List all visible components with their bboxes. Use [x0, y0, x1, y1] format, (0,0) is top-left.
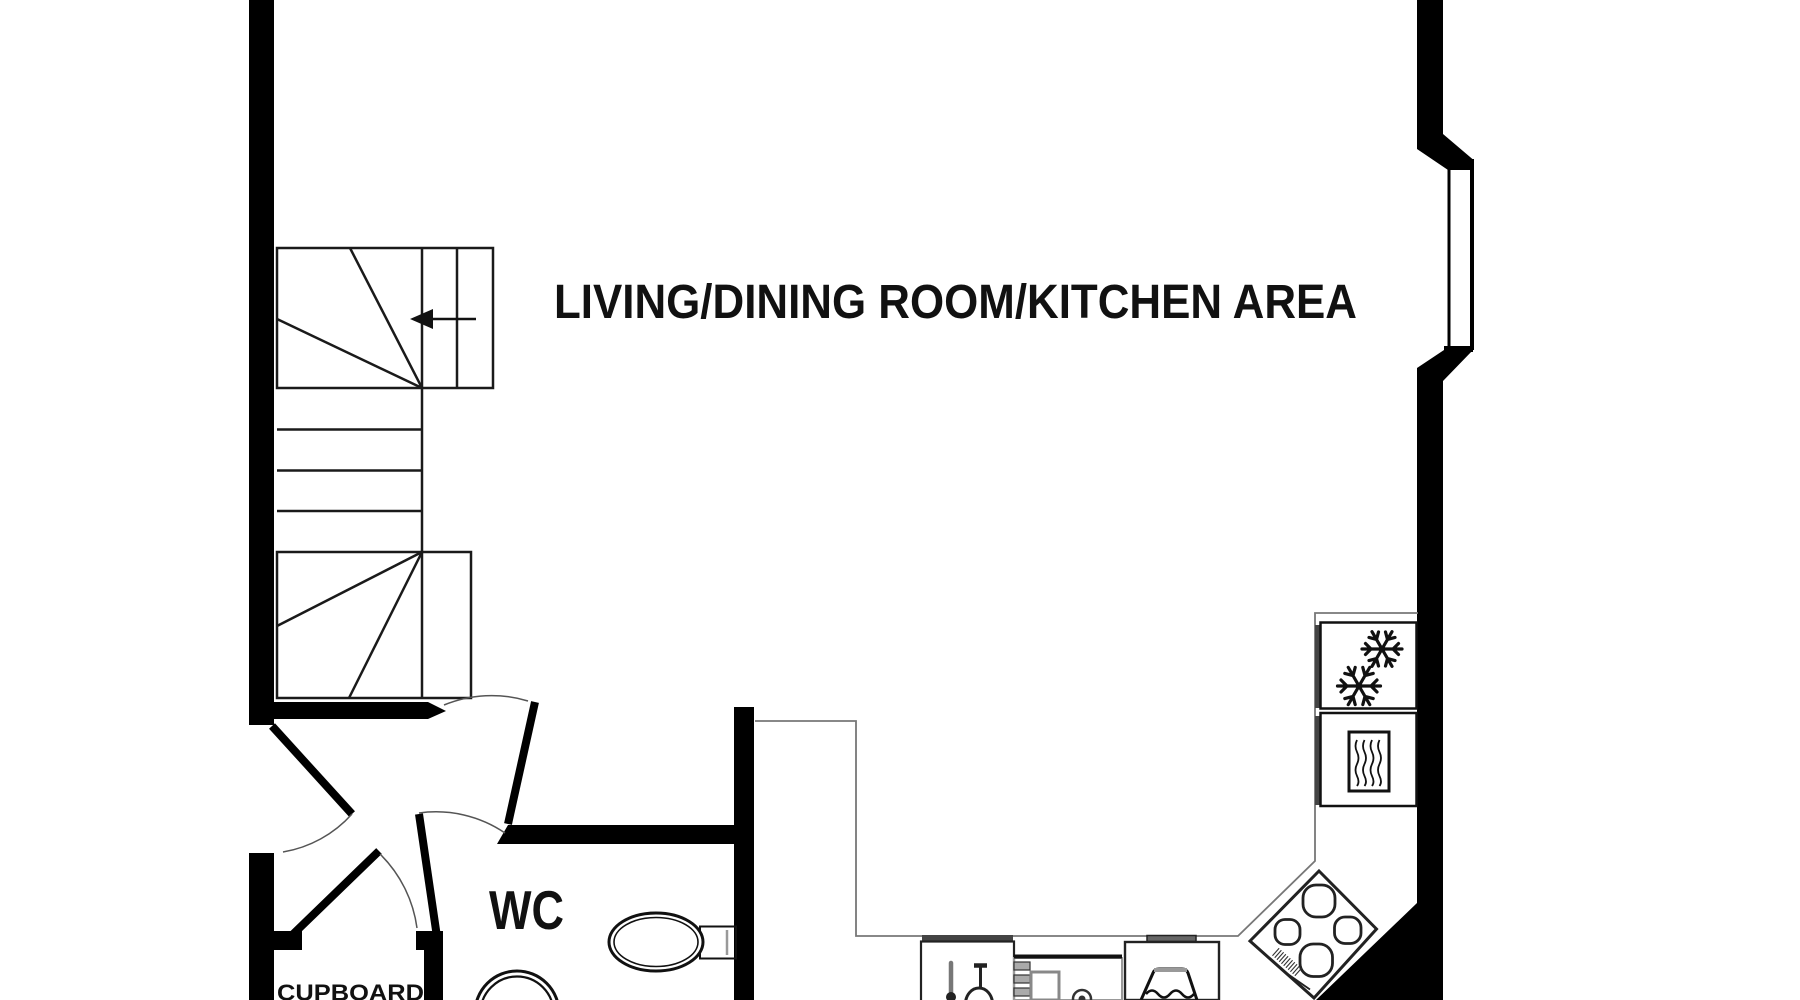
svg-text:WC: WC	[489, 879, 564, 941]
svg-text:LIVING/DINING ROOM/KITCHEN ARE: LIVING/DINING ROOM/KITCHEN AREA	[554, 275, 1357, 329]
svg-text:CUPBOARD: CUPBOARD	[277, 980, 424, 1000]
